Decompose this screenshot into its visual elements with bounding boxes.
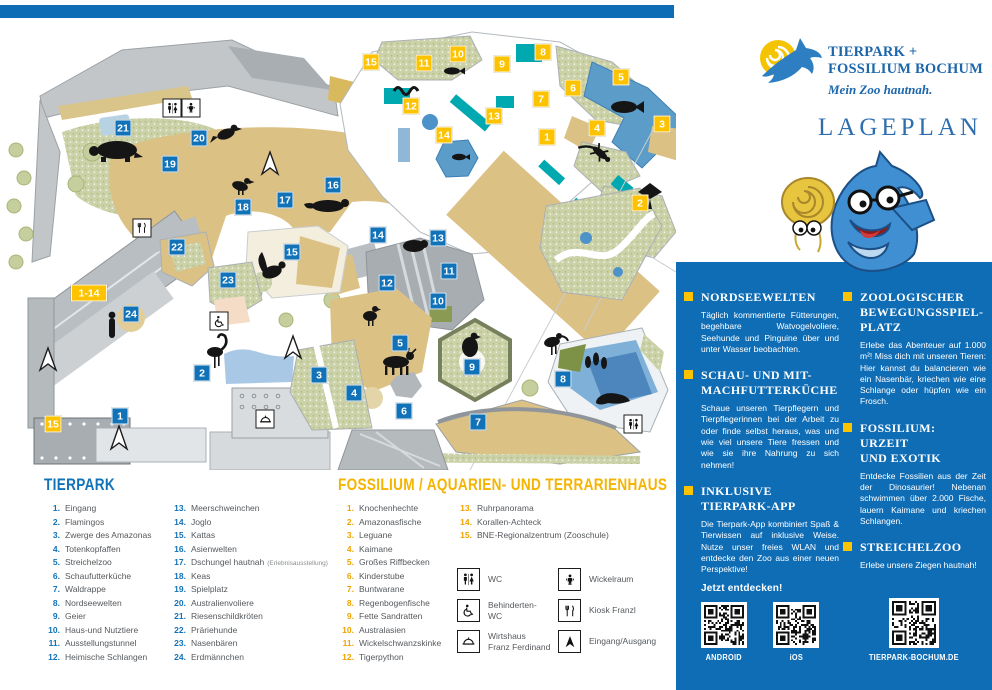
map-marker[interactable]: 9 [464, 359, 481, 376]
wc-icon [624, 415, 643, 434]
legend-item-number: 4. [338, 544, 354, 554]
legend-item: 4. Kaimane [338, 544, 441, 558]
legend-item: 6. Schaufutterküche [44, 571, 154, 585]
legend-item-label: Präriehunde [191, 625, 237, 635]
flamingo-silhouette [207, 334, 226, 368]
map-marker-number: 4 [351, 387, 357, 399]
legend-item: 8. Regenbogenfische [338, 598, 441, 612]
map-marker-number: 13 [432, 232, 444, 244]
shark-mascot [764, 146, 942, 280]
map-marker-number: 8 [540, 46, 546, 58]
legend-item-number: 13. [456, 503, 472, 513]
map-marker-number: 9 [499, 58, 505, 70]
zoo-map: 21 20 19 18 17 16 22 23 24 15 14 13 12 1… [0, 0, 676, 470]
legend-item-label: Korallen-Achteck [477, 517, 541, 527]
map-marker[interactable]: 6 [396, 403, 413, 420]
map-marker[interactable]: 9 [494, 56, 511, 73]
legend-item-label: Riesenschildkröten [191, 611, 263, 621]
map-marker[interactable]: 10 [430, 293, 447, 310]
legend-item: 2. Amazonasfische [338, 517, 441, 531]
legend-item-number: 9. [338, 611, 354, 621]
section-title: FOSSILIUM: URZEIT UND EXOTIK [860, 421, 986, 466]
legend-item-number: 12. [338, 652, 354, 662]
section-body: Die Tierpark-App kombiniert Spaß & Tierw… [701, 519, 839, 575]
app-cta[interactable]: Jetzt entdecken! [701, 583, 839, 594]
map-marker[interactable]: 18 [235, 199, 252, 216]
facility-wirtshaus: Wirtshaus Franz Ferdinand [457, 626, 550, 657]
map-marker[interactable]: 1 [112, 408, 129, 425]
legend-item-number: 5. [338, 557, 354, 567]
map-marker-number: 15 [365, 56, 377, 68]
legend-item-number: 12. [44, 652, 60, 662]
legend-item: 13. Meerschweinchen [170, 503, 328, 517]
wc-icon [457, 568, 480, 591]
map-marker[interactable]: 10 [450, 46, 467, 63]
lageplan-page: { "colors": { "brand_blue": "#0f6db6", "… [0, 0, 992, 690]
legend-item: 1. Eingang [44, 503, 154, 517]
legend-item: 10. Australasien [338, 625, 441, 639]
facility-behinderten-wc: Behinderten- WC [457, 595, 550, 626]
kiosk-icon [558, 599, 581, 622]
brand-tagline: Mein Zoo hautnah. [828, 82, 932, 98]
legend-item-label: Joglo [191, 517, 211, 527]
legend-item-number: 14. [170, 517, 186, 527]
page-title: LAGEPLAN [818, 114, 982, 142]
section-fossilium: FOSSILIUM: URZEIT UND EXOTIK Entdecke Fo… [843, 421, 986, 527]
legend-item: 20. Australienvoliere [170, 598, 328, 612]
map-terrain [0, 0, 676, 470]
legend-item: 12. Tigerpython [338, 652, 441, 666]
map-marker[interactable]: 4 [589, 120, 606, 137]
map-marker-number: 23 [222, 274, 234, 286]
tierpark-legend-col1: 1. Eingang 2. Flamingos 3. Zwerge des Am… [44, 503, 154, 665]
legend-item-label: Flamingos [65, 517, 104, 527]
legend-item-number: 14. [456, 517, 472, 527]
qr-code-android [701, 602, 747, 648]
legend-item: 16. Asienwelten [170, 544, 328, 558]
legend-item-number: 15. [170, 530, 186, 540]
map-marker-number: 16 [327, 179, 339, 191]
map-marker[interactable]: 8 [535, 44, 552, 61]
legend-item-label: Streichelzoo [65, 557, 112, 567]
map-marker-number: 20 [193, 132, 205, 144]
legend-item: 21. Riesenschildkröten [170, 611, 328, 625]
fossilium-legend-title: FOSSILIUM / AQUARIEN- UND TERRARIENHAUS [338, 475, 667, 495]
map-marker-number: 5 [397, 337, 403, 349]
map-marker[interactable]: 15 [45, 416, 62, 433]
legend-item: 5. Großes Riffbecken [338, 557, 441, 571]
map-marker-number: 6 [401, 405, 407, 417]
legend-item-label: Ruhrpanorama [477, 503, 534, 513]
facility-label: Kiosk Franzl [589, 605, 636, 615]
legend-item-label: Kaimane [359, 544, 393, 554]
wirtshaus-icon [256, 410, 275, 429]
bullet-icon [684, 486, 693, 495]
section-title: NORDSEEWELTEN [701, 290, 816, 305]
map-marker-number: 13 [488, 110, 500, 122]
qr-android: ANDROID [701, 602, 747, 662]
map-marker[interactable]: 13 [486, 108, 503, 125]
qr-code-website [889, 598, 939, 648]
legend-item-label: Asienwelten [191, 544, 237, 554]
qr-label-android: ANDROID [706, 653, 742, 662]
map-marker[interactable]: 13 [430, 230, 447, 247]
facility-wc: WC [457, 564, 550, 595]
legend-item: 15. BNE-Regionalzentrum (Zooschule) [456, 530, 609, 544]
legend-item-label: Geier [65, 611, 86, 621]
legend-item-number: 8. [338, 598, 354, 608]
qr-code-ios [773, 602, 819, 648]
legend-item: 3. Leguane [338, 530, 441, 544]
legend-item-label: Waldrappe [65, 584, 106, 594]
map-marker-number: 9 [469, 361, 475, 373]
legend-item: 23. Nasenbären [170, 638, 328, 652]
legend-item-label: Keas [191, 571, 210, 581]
section-futterkueche: SCHAU- UND MIT- MACHFUTTERKÜCHE Schaue u… [684, 368, 839, 471]
map-marker-number: 7 [538, 93, 544, 105]
map-marker[interactable]: 11 [441, 263, 458, 280]
legend-item: 9. Geier [44, 611, 154, 625]
legend-item-note: (Erlebnisausstellung) [267, 560, 328, 567]
map-marker-number: 2 [199, 367, 205, 379]
legend-item-label: Spielplatz [191, 584, 228, 594]
map-marker-number: 15 [286, 246, 298, 258]
legend-item-label: Buntwarane [359, 584, 404, 594]
section-body: Schaue unseren Tierpflegern und Tierpfle… [701, 403, 839, 471]
map-marker-number: 22 [171, 241, 183, 253]
bullet-icon [684, 370, 693, 379]
legend-item-label: Erdmännchen [191, 652, 244, 662]
legend-item-number: 17. [170, 557, 186, 567]
section-body: Erlebe unsere Ziegen hautnah! [860, 560, 986, 571]
facility-label: Wickelraum [589, 574, 633, 584]
legend-item-label: Eingang [65, 503, 96, 513]
fossilium-legend-col2: 13. Ruhrpanorama 14. Korallen-Achteck 15… [456, 503, 609, 544]
map-marker[interactable]: 5 [392, 335, 409, 352]
legend-item: 22. Präriehunde [170, 625, 328, 639]
map-marker[interactable]: 4 [346, 385, 363, 402]
legend-item-label: Tigerpython [359, 652, 404, 662]
facility-kiosk: Kiosk Franzl [558, 595, 656, 626]
facility-eingang: Eingang/Ausgang [558, 626, 656, 657]
legend-item-number: 9. [44, 611, 60, 621]
bullet-icon [843, 292, 852, 301]
map-marker[interactable]: 12 [403, 98, 420, 115]
facility-legend-right: Wickelraum Kiosk Franzl Eingang/Ausgang [558, 564, 656, 657]
legend-item: 14. Korallen-Achteck [456, 517, 609, 531]
brand-line2: FOSSILIUM BOCHUM [828, 61, 983, 78]
map-marker[interactable]: 21 [115, 120, 132, 137]
legend-item-label: Leguane [359, 530, 392, 540]
legend-item: 14. Joglo [170, 517, 328, 531]
map-marker[interactable]: 11 [416, 55, 433, 72]
map-marker-number: 10 [432, 295, 444, 307]
legend-item-label: Heimische Schlangen [65, 652, 147, 662]
legend-item-label: Nasenbären [191, 638, 237, 648]
legend-item-number: 7. [44, 584, 60, 594]
section-body: Täglich kommentierte Fütterungen, begehb… [701, 310, 839, 355]
legend-item-label: Australasien [359, 625, 406, 635]
map-marker-number: 3 [316, 369, 322, 381]
legend-item-number: 4. [44, 544, 60, 554]
legend-item: 4. Totenkopfaffen [44, 544, 154, 558]
legend-item: 11. Ausstellungstunnel [44, 638, 154, 652]
map-marker-number: 10 [452, 48, 464, 60]
legend-item-number: 20. [170, 598, 186, 608]
map-marker[interactable]: 14 [370, 227, 387, 244]
legend-item-label: Dschungel hautnah [191, 557, 264, 567]
section-streichelzoo: STREICHELZOO Erlebe unsere Ziegen hautna… [843, 540, 986, 571]
legend-item-number: 5. [44, 557, 60, 567]
map-marker-number: 4 [594, 122, 600, 134]
legend-item-number: 15. [456, 530, 472, 540]
legend-item-number: 10. [338, 625, 354, 635]
map-marker-number: 12 [381, 277, 393, 289]
bullet-icon [684, 292, 693, 301]
wickelraum-icon [182, 99, 201, 118]
map-marker[interactable]: 12 [379, 275, 396, 292]
map-marker-number: 5 [618, 71, 624, 83]
map-marker[interactable]: 16 [325, 177, 342, 194]
map-marker[interactable]: 3 [311, 367, 328, 384]
qr-label-ios: iOS [789, 653, 803, 662]
behinderten-wc-icon [457, 599, 480, 622]
map-marker-number: 19 [164, 158, 176, 170]
info-sidebar: NORDSEEWELTEN Täglich kommentierte Fütte… [676, 262, 992, 690]
map-marker[interactable]: 7 [533, 91, 550, 108]
kiosk-icon [133, 219, 152, 238]
tierpark-legend-title: TIERPARK [44, 475, 115, 495]
wickelraum-icon [558, 568, 581, 591]
legend-item-number: 3. [44, 530, 60, 540]
zoo-logo-icon [752, 32, 824, 96]
bullet-icon [843, 423, 852, 432]
legend-item: 19. Spielplatz [170, 584, 328, 598]
section-title: SCHAU- UND MIT- MACHFUTTERKÜCHE [701, 368, 838, 398]
legend-item-label: Haus-und Nutztiere [65, 625, 138, 635]
map-marker[interactable]: 23 [220, 272, 237, 289]
legend-item-label: Totenkopfaffen [65, 544, 121, 554]
legend-item-label: Amazonasfische [359, 517, 421, 527]
eingang-ausgang-icon [558, 630, 581, 653]
section-title: ZOOLOGISCHER BEWEGUNGSSPIEL- PLATZ [860, 290, 983, 335]
legend-item-number: 11. [44, 638, 60, 648]
legend-item-number: 19. [170, 584, 186, 594]
legend-item: 2. Flamingos [44, 517, 154, 531]
map-marker[interactable]: 1 [539, 129, 556, 146]
map-marker-number: 6 [570, 82, 576, 94]
map-marker[interactable]: 15 [363, 54, 380, 71]
map-marker-number: 3 [659, 118, 665, 130]
map-marker-number: 1 [117, 410, 123, 422]
map-marker[interactable]: 8 [555, 371, 572, 388]
section-tierpark-app: INKLUSIVE TIERPARK-APP Die Tierpark-App … [684, 484, 839, 662]
legend-item: 15. Kattas [170, 530, 328, 544]
qr-label-website: TIERPARK-BOCHUM.DE [869, 653, 959, 662]
map-marker-number: 1-14 [78, 287, 99, 299]
map-marker-number: 2 [637, 197, 643, 209]
map-marker-number: 21 [117, 122, 129, 134]
map-marker-range[interactable]: 1-14 [71, 285, 107, 302]
legend-item: 17. Dschungel hautnah (Erlebnisausstellu… [170, 557, 328, 571]
map-marker-number: 14 [372, 229, 384, 241]
legend-item: 11. Wickelschwanzskinke [338, 638, 441, 652]
map-marker[interactable]: 24 [123, 306, 140, 323]
legend-item: 12. Heimische Schlangen [44, 652, 154, 666]
section-body: Entdecke Fossilien aus der Zeit der Dino… [860, 471, 986, 527]
legend-item-number: 6. [338, 571, 354, 581]
map-marker-number: 14 [438, 129, 450, 141]
map-marker-number: 12 [405, 100, 417, 112]
legend-item: 8. Nordseewelten [44, 598, 154, 612]
legend-item-number: 18. [170, 571, 186, 581]
legend-item-number: 1. [338, 503, 354, 513]
legend-item: 1. Knochenhechte [338, 503, 441, 517]
legend-item: 10. Haus-und Nutztiere [44, 625, 154, 639]
map-marker[interactable]: 7 [470, 414, 487, 431]
meerkat-silhouette [109, 312, 116, 338]
qr-website: TIERPARK-BOCHUM.DE [865, 598, 963, 662]
legend-item: 7. Buntwarane [338, 584, 441, 598]
legend-item-number: 3. [338, 530, 354, 540]
legend-item-label: Schaufutterküche [65, 571, 131, 581]
legend-item: 7. Waldrappe [44, 584, 154, 598]
map-marker[interactable]: 2 [632, 195, 649, 212]
legend-item-label: Regenbogenfische [359, 598, 430, 608]
section-title: INKLUSIVE TIERPARK-APP [701, 484, 796, 514]
wirtshaus-icon [457, 630, 480, 653]
map-marker-number: 11 [418, 57, 429, 69]
map-marker-number: 11 [443, 265, 454, 277]
map-marker-number: 7 [475, 416, 481, 428]
section-nordseewelten: NORDSEEWELTEN Täglich kommentierte Fütte… [684, 290, 839, 355]
legend-item-label: Kinderstube [359, 571, 404, 581]
legend-item-label: Kattas [191, 530, 215, 540]
facility-label: WC [488, 574, 502, 584]
legend-item-label: Meerschweinchen [191, 503, 260, 513]
map-marker[interactable]: 14 [436, 127, 453, 144]
legend-item: 5. Streichelzoo [44, 557, 154, 571]
facility-label: Wirtshaus Franz Ferdinand [488, 631, 550, 651]
legend-item-number: 16. [170, 544, 186, 554]
legend-item-number: 13. [170, 503, 186, 513]
map-marker[interactable]: 3 [654, 116, 671, 133]
legend-item-label: Australienvoliere [191, 598, 254, 608]
brand-name: TIERPARK + FOSSILIUM BOCHUM [828, 44, 983, 79]
legend-item-number: 22. [170, 625, 186, 635]
legend-item-number: 11. [338, 638, 354, 648]
map-marker[interactable]: 19 [162, 156, 179, 173]
legend-item-number: 1. [44, 503, 60, 513]
legend-item: 6. Kinderstube [338, 571, 441, 585]
legend-item-number: 7. [338, 584, 354, 594]
legend-item-label: Großes Riffbecken [359, 557, 430, 567]
facility-legend-left: WC Behinderten- WC Wirtshaus Franz Ferdi… [457, 564, 550, 657]
tierpark-legend-col2: 13. Meerschweinchen 14. Joglo 15. Kattas… [170, 503, 328, 665]
map-marker[interactable]: 15 [284, 244, 301, 261]
legend-item-label: Knochenhechte [359, 503, 418, 513]
section-body: Erlebe das Abenteuer auf 1.000 m²! Miss … [860, 340, 986, 408]
legend-item-label: Wickelschwanzskinke [359, 638, 441, 648]
legend-item-label: Zwerge des Amazonas [65, 530, 151, 540]
map-marker[interactable]: 22 [169, 239, 186, 256]
legend-item: 13. Ruhrpanorama [456, 503, 609, 517]
legend-item-label: Ausstellungstunnel [65, 638, 136, 648]
legend-item: 18. Keas [170, 571, 328, 585]
brand-line1: TIERPARK + [828, 44, 983, 61]
facility-wickelraum: Wickelraum [558, 564, 656, 595]
map-marker-number: 1 [544, 131, 550, 143]
facility-label: Behinderten- WC [488, 600, 537, 620]
legend-item-label: Fette Sandratten [359, 611, 422, 621]
legend-item-number: 2. [338, 517, 354, 527]
legend-item-number: 10. [44, 625, 60, 635]
legend-item-number: 8. [44, 598, 60, 608]
map-marker-number: 15 [47, 418, 59, 430]
bullet-icon [843, 542, 852, 551]
legend-item-number: 2. [44, 517, 60, 527]
map-marker-number: 8 [560, 373, 566, 385]
section-bewegungsspielplatz: ZOOLOGISCHER BEWEGUNGSSPIEL- PLATZ Erleb… [843, 290, 986, 408]
legend-item: 24. Erdmännchen [170, 652, 328, 666]
fossilium-legend-col1: 1. Knochenhechte 2. Amazonasfische 3. Le… [338, 503, 441, 665]
map-marker-number: 17 [279, 194, 291, 206]
map-marker-number: 24 [125, 308, 137, 320]
section-title: STREICHELZOO [860, 540, 962, 555]
legend-item-label: BNE-Regionalzentrum (Zooschule) [477, 530, 609, 540]
legend-item-number: 24. [170, 652, 186, 662]
qr-ios: iOS [773, 602, 819, 662]
map-marker[interactable]: 17 [277, 192, 294, 209]
map-marker[interactable]: 2 [194, 365, 211, 382]
legend-item-number: 23. [170, 638, 186, 648]
legend-item: 9. Fette Sandratten [338, 611, 441, 625]
map-marker[interactable]: 5 [613, 69, 630, 86]
facility-label: Eingang/Ausgang [589, 636, 656, 646]
legend-item-number: 6. [44, 571, 60, 581]
legend-item: 3. Zwerge des Amazonas [44, 530, 154, 544]
map-marker[interactable]: 6 [565, 80, 582, 97]
legend-item-label: Nordseewelten [65, 598, 122, 608]
map-marker-number: 18 [237, 201, 249, 213]
wc-icon [163, 99, 182, 118]
legend-item-number: 21. [170, 611, 186, 621]
behinderten-wc-icon [210, 312, 229, 331]
map-marker[interactable]: 20 [191, 130, 208, 147]
